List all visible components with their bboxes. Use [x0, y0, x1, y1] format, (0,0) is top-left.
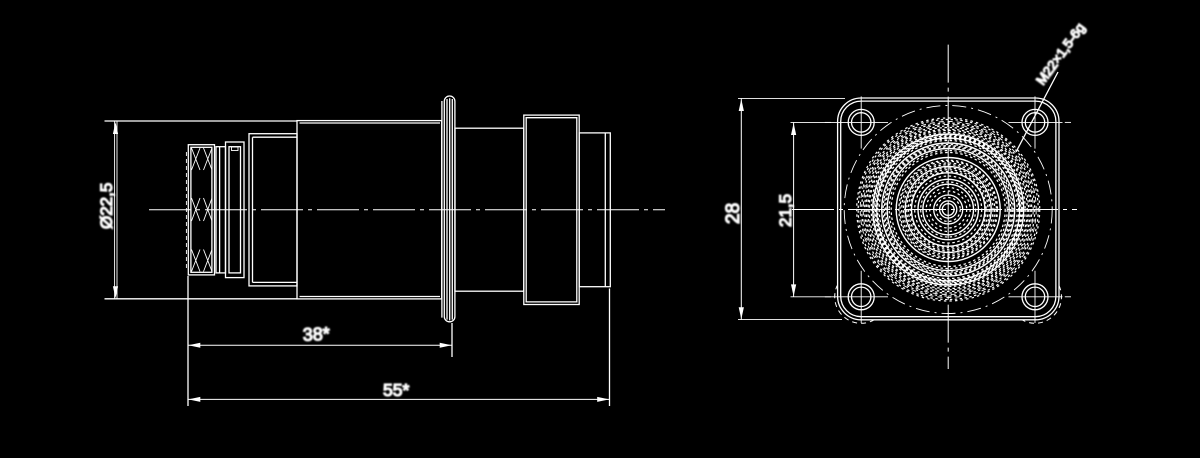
svg-text:55*: 55*: [383, 380, 409, 400]
svg-text:Ø22,5: Ø22,5: [97, 183, 116, 229]
svg-text:38*: 38*: [302, 324, 330, 345]
svg-text:М22×1,5-6g: М22×1,5-6g: [1033, 20, 1088, 87]
svg-text:28: 28: [723, 203, 744, 224]
svg-text:21,5: 21,5: [776, 194, 795, 227]
